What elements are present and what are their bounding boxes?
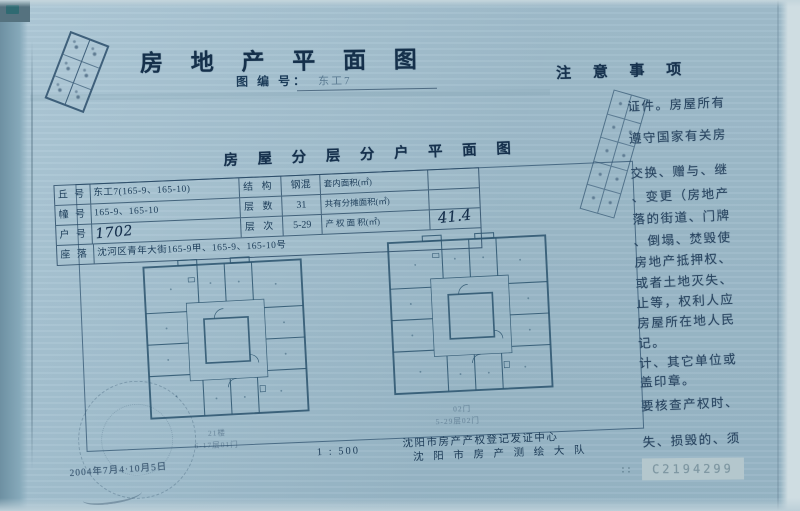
table-cell-attr-value: 钢混 [281, 175, 321, 196]
notes-column: 证件。房屋所有 遵守国家有关房 交换、赠与、继 、变更（房地产 落的街道、门牌 … [627, 88, 800, 451]
table-cell-label: 座 落 [57, 244, 95, 265]
floor-plan-right-svg [382, 227, 558, 403]
table-cell-label: 丘 号 [54, 185, 90, 205]
table-cell-attr-label: 层 数 [241, 197, 283, 218]
plan-sheet-body: 房 屋 分 层 分 户 平 面 图 丘 号 东工7(165-9、165-10) … [38, 128, 652, 498]
table-cell-area-value [428, 168, 479, 189]
scan-streak [30, 89, 550, 100]
floor-plan-right [382, 227, 558, 403]
plan-caption-left-2: 6-17层01门 [194, 439, 239, 452]
notes-title: 注 意 事 项 [556, 58, 691, 83]
scan-edge-left [0, 0, 28, 511]
note-line: 要核查产权时、 [641, 388, 800, 415]
table-cell-attr-label: 结 构 [240, 177, 282, 198]
note-line: 证件。房屋所有 [627, 88, 800, 115]
table-cell-attr-label: 层 次 [241, 217, 283, 238]
table-cell-label: 幢 号 [55, 205, 91, 225]
table-cell-label: 户 号 [56, 225, 92, 245]
note-line: 遵守国家有关房 [628, 120, 800, 147]
table-cell-attr-value: 5-29 [283, 215, 323, 236]
scanned-document: 房 地 产 平 面 图 图 编 号：东工7 注 意 事 项 证件。房屋所有 遵守… [0, 0, 800, 511]
scan-edge-top [0, 0, 800, 7]
plan-caption-right-2: 5-29层02门 [435, 414, 480, 427]
table-cell-area-value-handwritten: 41.4 [430, 208, 481, 229]
section-title: 房 屋 分 层 分 户 平 面 图 [223, 137, 519, 170]
paper-fold-line [31, 40, 33, 470]
drawing-number-value: 东工7 [318, 72, 352, 88]
plan-caption-right-1: 02门 [453, 403, 471, 415]
serial-number: C2194299 [642, 457, 744, 480]
table-cell-attr-value: 31 [282, 195, 322, 216]
drawing-number: 图 编 号：东工7 [236, 71, 352, 90]
drawing-number-label: 图 编 号： [236, 74, 308, 89]
handwritten-unit-number: 1702 [94, 222, 133, 244]
registry-stamp-icon [44, 31, 109, 113]
scale-text: 1 : 500 [317, 445, 361, 458]
serial-number-block: :: C2194299 [620, 457, 744, 480]
note-line: 交换、赠与、继 [630, 155, 800, 182]
serial-colon-mark: :: [620, 464, 632, 475]
handwritten-area-value: 41.4 [437, 206, 472, 229]
plan-caption-left-1: 21楼 [208, 427, 226, 439]
